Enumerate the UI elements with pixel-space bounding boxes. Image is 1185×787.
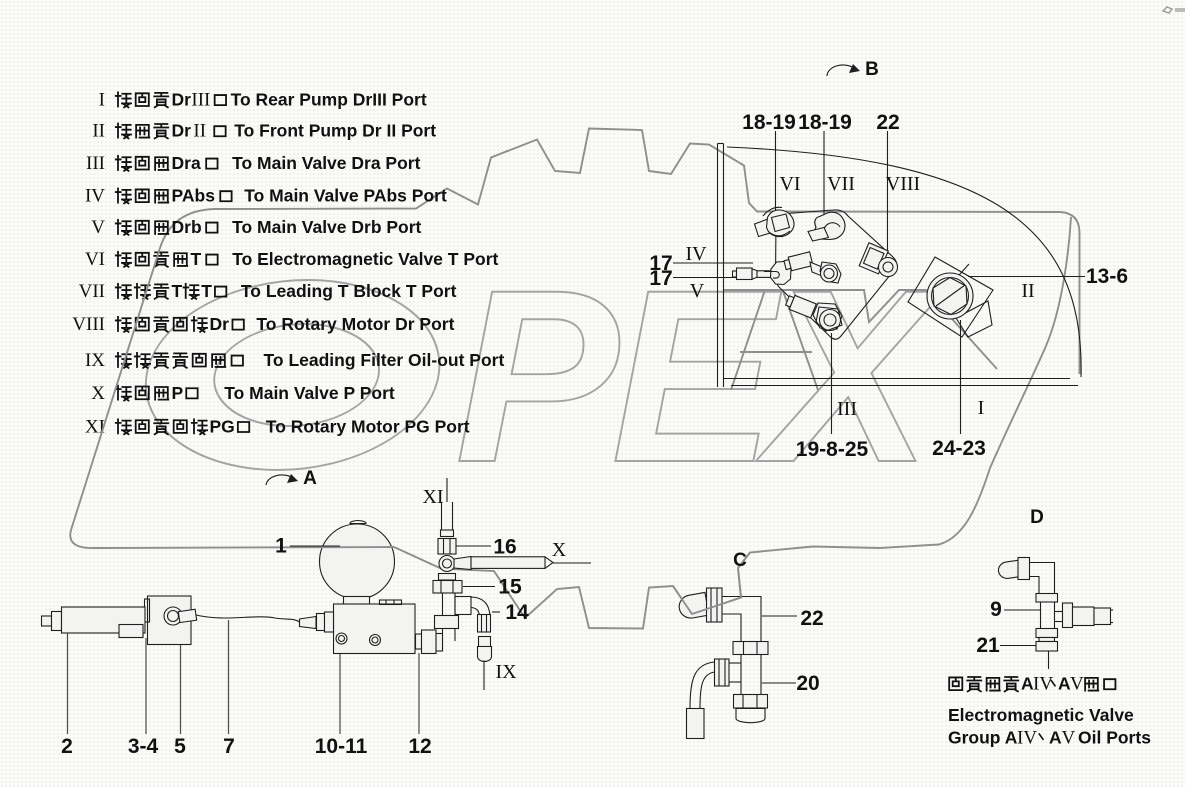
svg-text:B: B: [865, 59, 879, 80]
svg-text:IX: IX: [495, 661, 517, 683]
svg-text:IV: IV: [1017, 728, 1037, 749]
svg-text:II: II: [193, 121, 206, 142]
svg-text:X: X: [91, 383, 105, 404]
svg-text:III: III: [837, 398, 857, 420]
svg-text:P: P: [172, 383, 184, 403]
svg-text:III: III: [86, 153, 105, 174]
svg-text:PAbs: PAbs: [172, 186, 216, 206]
svg-text:To Electromagnetic Valve T Por: To Electromagnetic Valve T Port: [232, 249, 498, 269]
svg-text:V: V: [1062, 728, 1076, 749]
svg-text:X: X: [552, 539, 567, 561]
svg-text:IX: IX: [85, 350, 105, 371]
svg-text:V: V: [1070, 674, 1084, 695]
svg-text:VI: VI: [85, 249, 105, 270]
svg-text:Electromagnetic Valve: Electromagnetic Valve: [948, 705, 1134, 725]
svg-text:19-8-25: 19-8-25: [796, 438, 869, 461]
svg-text:A: A: [1049, 728, 1062, 748]
svg-text:1: 1: [275, 535, 287, 558]
svg-text:3-4: 3-4: [128, 735, 159, 758]
svg-text:To Rear Pump DrIII Port: To Rear Pump DrIII Port: [231, 90, 427, 110]
svg-text:12: 12: [408, 735, 431, 758]
svg-text:III: III: [191, 90, 210, 111]
svg-text:20: 20: [796, 672, 819, 695]
svg-text:PG: PG: [210, 417, 235, 437]
svg-text:22: 22: [876, 111, 899, 134]
svg-text:To Leading Filter Oil-out Port: To Leading Filter Oil-out Port: [264, 350, 505, 370]
svg-text:D: D: [1030, 507, 1044, 528]
svg-text:17: 17: [649, 267, 672, 290]
svg-text:To Main Valve PAbs Port: To Main Valve PAbs Port: [244, 186, 447, 206]
svg-text:Oil Ports: Oil Ports: [1078, 728, 1151, 748]
svg-text:VIII: VIII: [72, 314, 105, 335]
svg-text:7: 7: [223, 735, 235, 758]
svg-text:I: I: [978, 397, 985, 419]
svg-text:A: A: [303, 468, 317, 489]
svg-text:18-19: 18-19: [742, 111, 796, 134]
svg-text:XI: XI: [422, 486, 443, 508]
svg-text:9: 9: [990, 598, 1002, 621]
svg-text:To Main Valve Dra Port: To Main Valve Dra Port: [232, 153, 421, 173]
svg-text:II: II: [92, 121, 105, 142]
svg-text:To Leading T Block T Port: To Leading T Block T Port: [241, 281, 457, 301]
svg-text:IV: IV: [1033, 674, 1053, 695]
svg-text:VII: VII: [79, 281, 105, 302]
svg-text:II: II: [1021, 280, 1034, 302]
svg-text:14: 14: [505, 601, 529, 624]
svg-text:VI: VI: [779, 173, 800, 195]
svg-text:21: 21: [976, 634, 1000, 657]
svg-text:V: V: [91, 217, 105, 238]
svg-text:Dra: Dra: [172, 153, 201, 173]
svg-text:24-23: 24-23: [932, 437, 986, 460]
svg-text:5: 5: [174, 735, 186, 758]
svg-text:To Rotary Motor PG Port: To Rotary Motor PG Port: [266, 417, 470, 437]
svg-text:To Main Valve Drb Port: To Main Valve Drb Port: [232, 217, 421, 237]
svg-text:VII: VII: [827, 173, 855, 195]
svg-text:I: I: [99, 90, 105, 111]
svg-text:T: T: [191, 249, 202, 269]
svg-text:V: V: [690, 280, 705, 302]
svg-text:Dr: Dr: [172, 121, 192, 141]
svg-text:18-19: 18-19: [798, 111, 852, 134]
svg-text:T: T: [201, 281, 212, 301]
svg-text:Group A: Group A: [948, 728, 1018, 748]
svg-text:To Front Pump Dr II Port: To Front Pump Dr II Port: [234, 121, 436, 141]
svg-text:IV: IV: [685, 243, 707, 265]
svg-text:Dr: Dr: [210, 314, 230, 334]
svg-text:Drb: Drb: [172, 217, 202, 237]
svg-text:2: 2: [61, 735, 73, 758]
svg-text:16: 16: [493, 536, 516, 559]
svg-text:15: 15: [498, 576, 522, 599]
svg-text:10-11: 10-11: [315, 735, 368, 758]
svg-text:VIII: VIII: [886, 173, 920, 195]
svg-text:IV: IV: [85, 186, 105, 207]
svg-text:T: T: [172, 281, 183, 301]
svg-text:C: C: [733, 550, 747, 571]
svg-text:13-6: 13-6: [1086, 265, 1128, 288]
svg-text:22: 22: [800, 607, 823, 630]
svg-text:Dr: Dr: [172, 90, 192, 110]
svg-text:To Rotary Motor Dr Port: To Rotary Motor Dr Port: [256, 314, 454, 334]
svg-text:To Main Valve P Port: To Main Valve P Port: [224, 383, 395, 403]
